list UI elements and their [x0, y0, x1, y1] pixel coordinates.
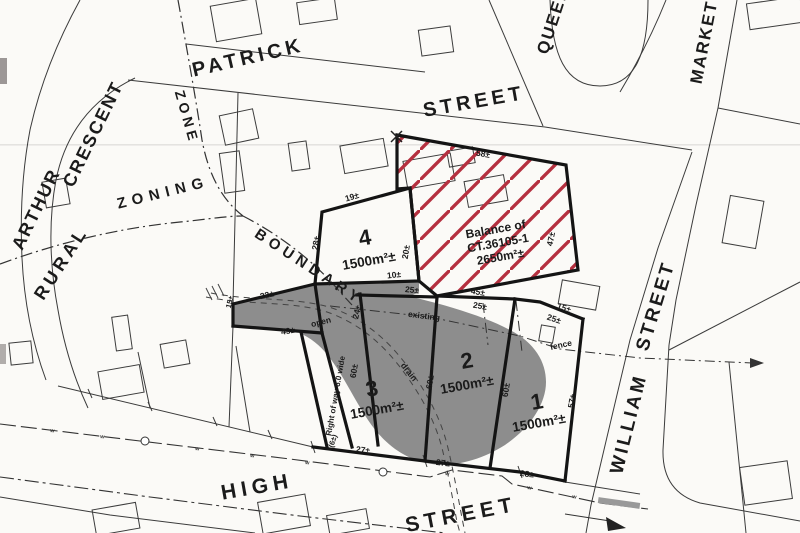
- arrow-marker: [606, 517, 626, 531]
- svg-text:w: w: [49, 428, 56, 435]
- dim-lot4-bottom: 10±: [387, 270, 402, 280]
- svg-text:w: w: [249, 453, 256, 460]
- william-street-east-edge: [669, 108, 718, 345]
- high-street-north-edge: [58, 386, 313, 447]
- dim-lot3-east: 60±: [425, 374, 436, 389]
- plan-linework: w w w w w w w w: [0, 0, 800, 533]
- dim-lot3-top: 25±: [405, 285, 420, 295]
- fence-line-arrowhead: [750, 358, 764, 368]
- dim-balance-top: 58±: [475, 149, 490, 160]
- dim-lot3-west: 60±: [349, 363, 360, 378]
- svg-text:w: w: [304, 460, 311, 467]
- dim-balance-bottom: 45±: [470, 287, 485, 298]
- svg-text:w: w: [571, 494, 578, 501]
- svg-text:w: w: [444, 471, 451, 478]
- dim-lot4-left: 28±: [311, 235, 322, 250]
- street-linework: [0, 0, 800, 533]
- shaded-area: [233, 282, 546, 465]
- dim-lot2-east: 60±: [501, 382, 512, 397]
- svg-text:w: w: [194, 446, 201, 453]
- survey-plan: w w w w w w w w PATRICK STREET QUEEN MAR…: [0, 0, 800, 533]
- dim-strip-bottom: 43±: [280, 326, 295, 337]
- dim-lot2-front: 27±: [435, 458, 450, 468]
- dim-lot4-right: 20±: [401, 244, 412, 259]
- dim-lot1-east: 57±: [567, 393, 578, 408]
- dim-lot3-front: 27±: [355, 445, 370, 455]
- dim-lot2-top: 25±: [472, 301, 487, 312]
- dim-lot1-front: 28±: [519, 469, 534, 479]
- svg-text:w: w: [99, 434, 106, 441]
